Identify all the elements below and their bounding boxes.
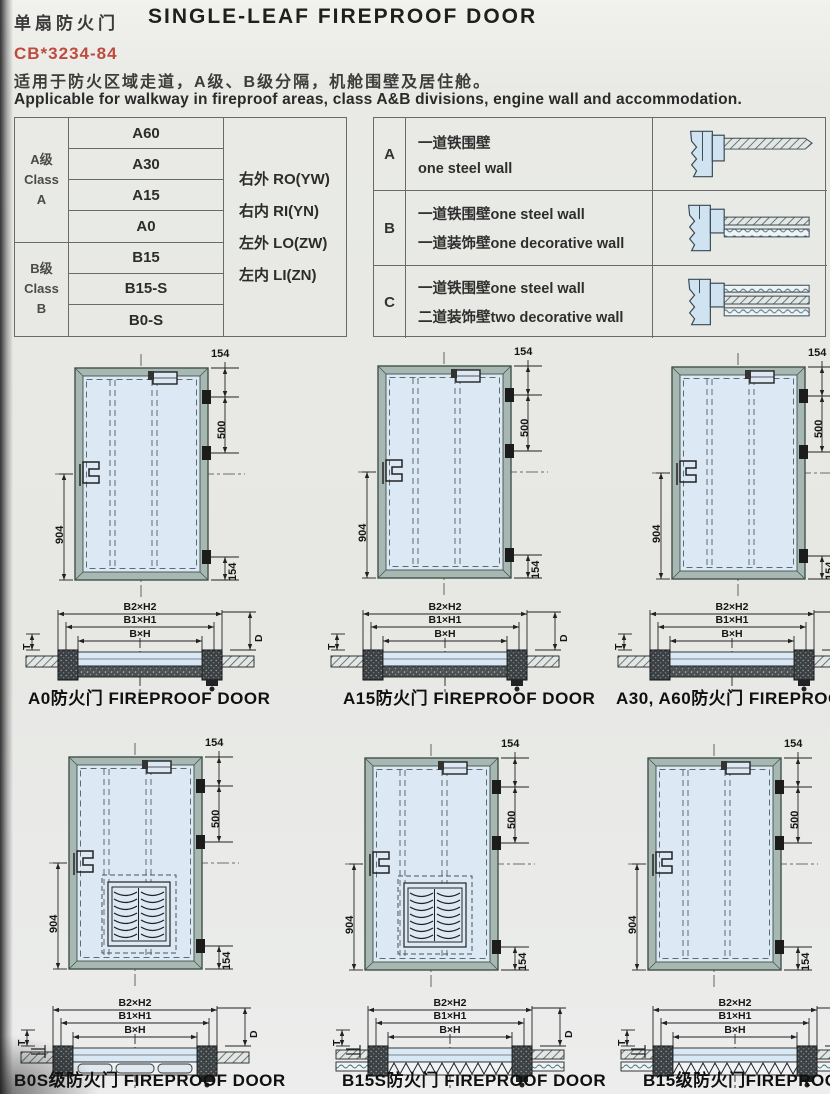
dim-label-154-top: 154: [514, 346, 532, 358]
door-drawing-b15: 154 500 904 154: [626, 742, 826, 992]
door-caption-b0s: B0S级防火门 FIREPROOF DOOR: [14, 1066, 286, 1091]
wall-diagram-c: [653, 266, 827, 338]
class-b-line: B: [37, 299, 46, 319]
dim-label-154-top: 154: [211, 348, 229, 360]
section-drawing-a15: B2×H2 B1×H1 B×H D T: [325, 604, 565, 696]
class-rating-table: A级 Class A A60 A30 A15 A0 B级 Class B B15…: [14, 117, 347, 337]
wall-desc-line: one steel wall: [418, 161, 652, 177]
section-dim-bh: B×H: [612, 628, 830, 640]
dim-label-154-bottom: 154: [517, 953, 529, 971]
door-drawing-a0: 154 500 904 154: [53, 352, 253, 602]
section-dim-bh: B×H: [15, 1024, 255, 1036]
section-dim-b1h1: B1×H1: [325, 614, 565, 626]
section-dim-d: D: [253, 634, 265, 642]
rating-cell-b0s: B0-S: [69, 305, 224, 336]
dim-label-904: 904: [344, 916, 356, 934]
section-dim-bh: B×H: [325, 628, 565, 640]
description-cn: 适用于防火区域走道，A级、B级分隔，机舱围壁及居住舱。: [14, 68, 491, 92]
class-b-line: B级: [30, 259, 52, 279]
door-drawing-b0s: 154 500 904 154: [47, 741, 247, 991]
door-drawing-a15: 154 500 904 154: [356, 350, 556, 600]
dim-label-154-bottom: 154: [800, 953, 812, 971]
dim-label-500: 500: [216, 421, 228, 439]
wall-diagram-a: [653, 118, 827, 191]
door-caption-a15: A15防火门 FIREPROOF DOOR: [343, 684, 595, 709]
section-dim-b1h1: B1×H1: [20, 614, 260, 626]
section-dim-t: T: [16, 1040, 28, 1046]
wall-row-desc-b: 一道铁围壁one steel wall 一道装饰壁one decorative …: [406, 191, 653, 266]
section-dim-d: D: [563, 1030, 575, 1038]
rating-cell-a30: A30: [69, 149, 224, 180]
orientation-right-inside: 右内 RI(YN): [239, 200, 319, 221]
dim-label-154-top: 154: [784, 738, 802, 750]
section-dim-b2h2: B2×H2: [330, 997, 570, 1009]
section-dim-bh: B×H: [330, 1024, 570, 1036]
rating-cell-a15: A15: [69, 180, 224, 211]
page-title-cn: 单扇防火门: [14, 9, 119, 34]
wall-row-key-c: C: [374, 266, 406, 338]
section-drawing-a0: B2×H2 B1×H1 B×H D T: [20, 604, 260, 696]
dim-label-154-bottom: 154: [221, 952, 233, 970]
section-dim-t: T: [331, 1040, 343, 1046]
section-dim-b2h2: B2×H2: [615, 997, 830, 1009]
class-a-cell: A级 Class A: [15, 118, 69, 243]
section-dim-b2h2: B2×H2: [612, 601, 830, 613]
standard-code: CB*3234-84: [14, 44, 118, 64]
rating-cell-a0: A0: [69, 211, 224, 242]
section-dim-t: T: [326, 644, 338, 650]
wall-desc-line: 一道铁围壁: [418, 132, 652, 153]
wall-row-desc-c: 一道铁围壁one steel wall 二道装饰壁two decorative …: [406, 266, 653, 338]
class-b-cell: B级 Class B: [15, 243, 69, 336]
dim-label-500: 500: [789, 811, 801, 829]
wall-row-desc-a: 一道铁围壁 one steel wall: [406, 118, 653, 191]
section-dim-b1h1: B1×H1: [612, 614, 830, 626]
rating-cell-b15s: B15-S: [69, 274, 224, 305]
orientation-left-outside: 左外 LO(ZW): [239, 232, 327, 253]
door-caption-b15s: B15S防火门 FIREPROOF DOOR: [342, 1066, 606, 1091]
dim-label-154-bottom: 154: [530, 561, 542, 579]
wall-row-key-a: A: [374, 118, 406, 191]
class-b-line: Class: [24, 279, 59, 299]
section-drawing-a30-a60: B2×H2 B1×H1 B×H D T: [612, 604, 830, 696]
door-drawing-a30-a60: 154 500 904 154: [650, 351, 830, 601]
dim-label-500: 500: [506, 811, 518, 829]
wall-row-key-b: B: [374, 191, 406, 266]
section-dim-t: T: [21, 644, 33, 650]
section-dim-b1h1: B1×H1: [330, 1010, 570, 1022]
dim-label-904: 904: [627, 916, 639, 934]
wall-diagram-b: [653, 191, 827, 266]
dim-label-500: 500: [813, 420, 825, 438]
scan-edge-shadow: [0, 0, 13, 1094]
dim-label-154-top: 154: [205, 737, 223, 749]
class-a-line: A: [37, 190, 46, 210]
wall-desc-line: 一道铁围壁one steel wall: [418, 277, 652, 298]
door-caption-a0: A0防火门 FIREPROOF DOOR: [28, 684, 270, 709]
wall-arrangement-table: A 一道铁围壁 one steel wall B 一道铁围壁one steel …: [373, 117, 826, 337]
section-dim-b1h1: B1×H1: [615, 1010, 830, 1022]
dim-label-904: 904: [48, 915, 60, 933]
orientation-cell: 右外 RO(YW) 右内 RI(YN) 左外 LO(ZW) 左内 LI(ZN): [224, 118, 348, 336]
wall-desc-line: 一道装饰壁one decorative wall: [418, 232, 652, 253]
section-dim-bh: B×H: [615, 1024, 830, 1036]
section-dim-b2h2: B2×H2: [15, 997, 255, 1009]
dim-label-904: 904: [651, 525, 663, 543]
door-caption-b15: B15级防火门FIREPROOF DOOR: [643, 1066, 830, 1091]
class-a-line: Class: [24, 170, 59, 190]
section-dim-b2h2: B2×H2: [20, 601, 260, 613]
section-dim-b1h1: B1×H1: [15, 1010, 255, 1022]
dim-label-154-bottom: 154: [824, 562, 830, 580]
section-dim-bh: B×H: [20, 628, 260, 640]
section-dim-b2h2: B2×H2: [325, 601, 565, 613]
dim-label-500: 500: [210, 810, 222, 828]
dim-label-500: 500: [519, 419, 531, 437]
dim-label-904: 904: [54, 526, 66, 544]
class-a-line: A级: [30, 150, 52, 170]
rating-cell-a60: A60: [69, 118, 224, 149]
scanned-catalog-page: { "header": { "title_cn": "单扇防火门", "titl…: [0, 0, 830, 1094]
orientation-left-inside: 左内 LI(ZN): [239, 264, 316, 285]
dim-label-154-bottom: 154: [227, 563, 239, 581]
dim-label-904: 904: [357, 524, 369, 542]
door-drawing-b15s: 154 500 904 154: [343, 742, 543, 992]
wall-desc-line: 二道装饰壁two decorative wall: [418, 306, 652, 327]
rating-cell-b15: B15: [69, 243, 224, 274]
wall-desc-line: 一道铁围壁one steel wall: [418, 203, 652, 224]
section-dim-t: T: [616, 1040, 628, 1046]
section-dim-d: D: [248, 1030, 260, 1038]
section-dim-d: D: [558, 634, 570, 642]
page-title-en: SINGLE-LEAF FIREPROOF DOOR: [148, 5, 537, 29]
description-en: Applicable for walkway in fireproof area…: [14, 91, 742, 109]
dim-label-154-top: 154: [501, 738, 519, 750]
door-caption-a30-a60: A30, A60防火门 FIREPROOF DOOR: [616, 684, 830, 709]
dim-label-154-top: 154: [808, 347, 826, 359]
section-dim-t: T: [613, 644, 625, 650]
orientation-right-outside: 右外 RO(YW): [239, 168, 330, 189]
